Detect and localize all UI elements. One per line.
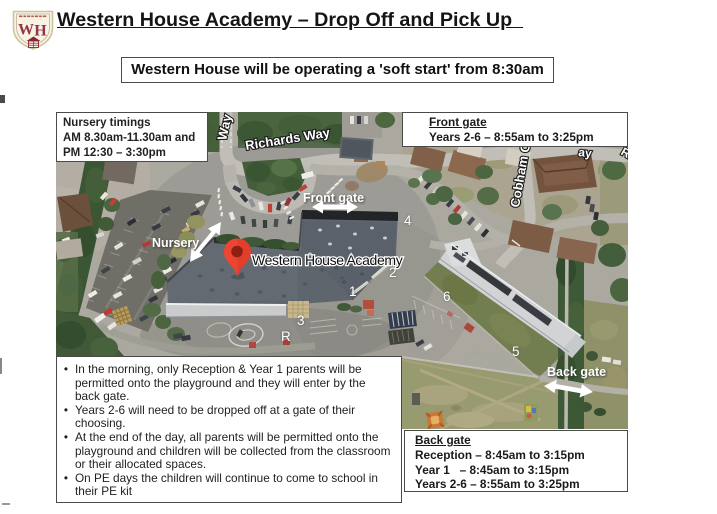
svg-text:Nursery: Nursery xyxy=(152,236,199,250)
svg-text:3: 3 xyxy=(297,313,305,328)
svg-text:4: 4 xyxy=(404,213,412,228)
svg-text:Front gate: Front gate xyxy=(303,191,364,205)
svg-text:W: W xyxy=(18,22,34,39)
svg-text:5: 5 xyxy=(512,344,520,359)
svg-text:Back gate: Back gate xyxy=(547,365,606,379)
svg-text:6: 6 xyxy=(443,289,451,304)
svg-text:H: H xyxy=(34,23,47,40)
svg-text:R: R xyxy=(281,329,291,344)
svg-text:ay: ay xyxy=(578,145,593,160)
svg-text:Western House Academy: Western House Academy xyxy=(252,252,403,268)
svg-text:1: 1 xyxy=(349,284,357,299)
